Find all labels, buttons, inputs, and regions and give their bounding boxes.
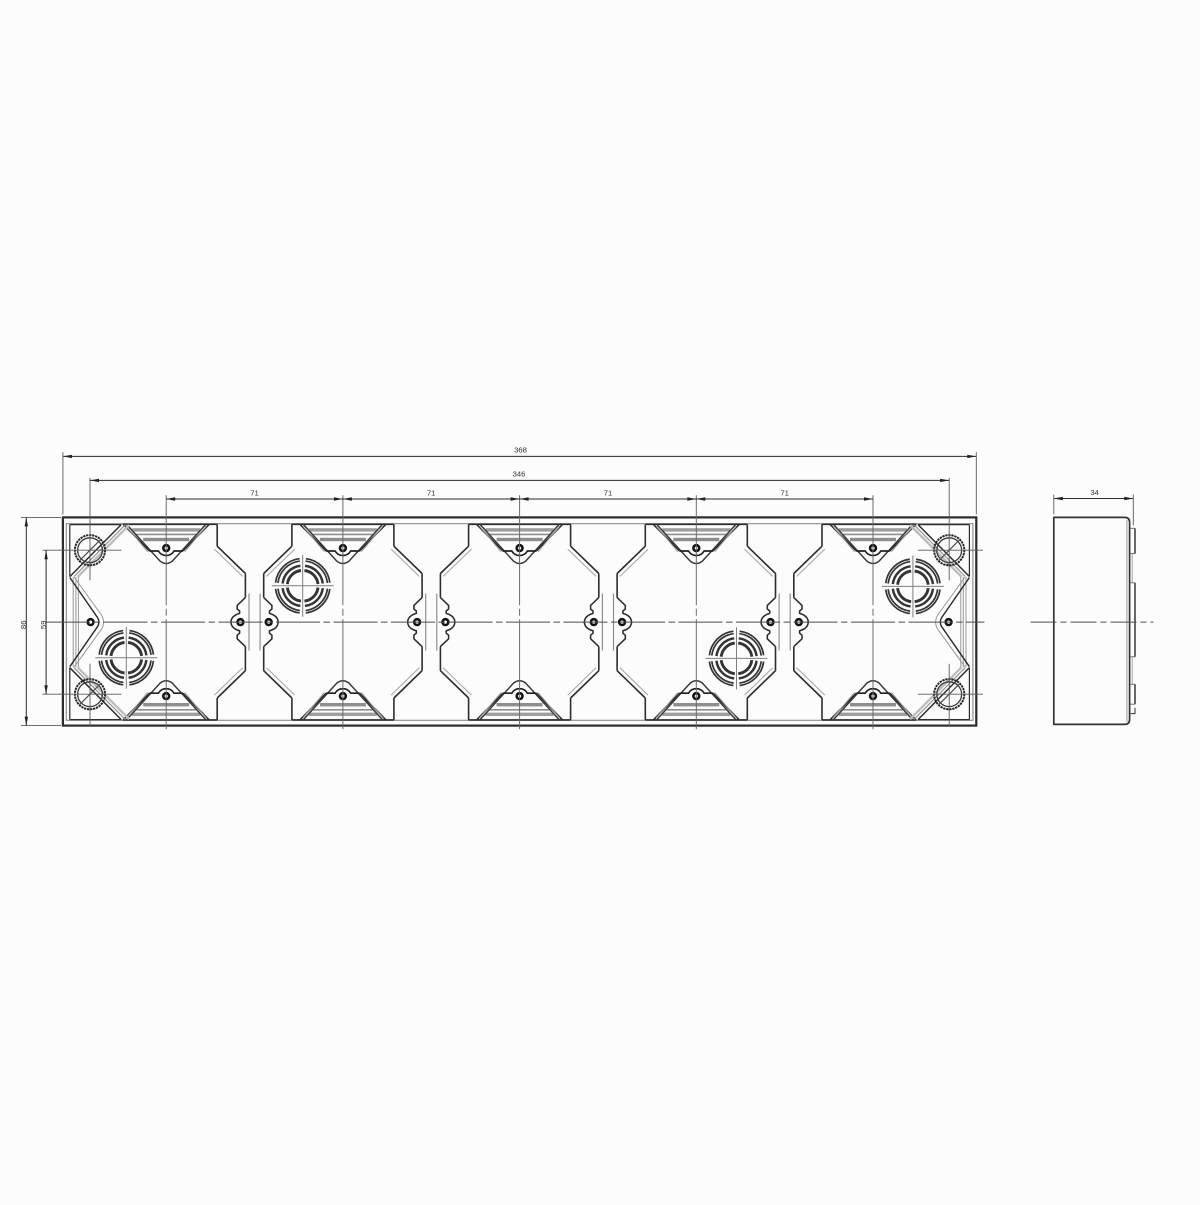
svg-text:346: 346 — [513, 470, 526, 479]
svg-text:86: 86 — [19, 621, 28, 630]
svg-text:59: 59 — [39, 621, 48, 630]
svg-text:71: 71 — [780, 488, 789, 497]
svg-text:368: 368 — [514, 446, 527, 455]
svg-text:34: 34 — [1090, 488, 1099, 497]
svg-text:71: 71 — [250, 488, 259, 497]
svg-text:71: 71 — [427, 488, 436, 497]
svg-text:71: 71 — [604, 488, 613, 497]
